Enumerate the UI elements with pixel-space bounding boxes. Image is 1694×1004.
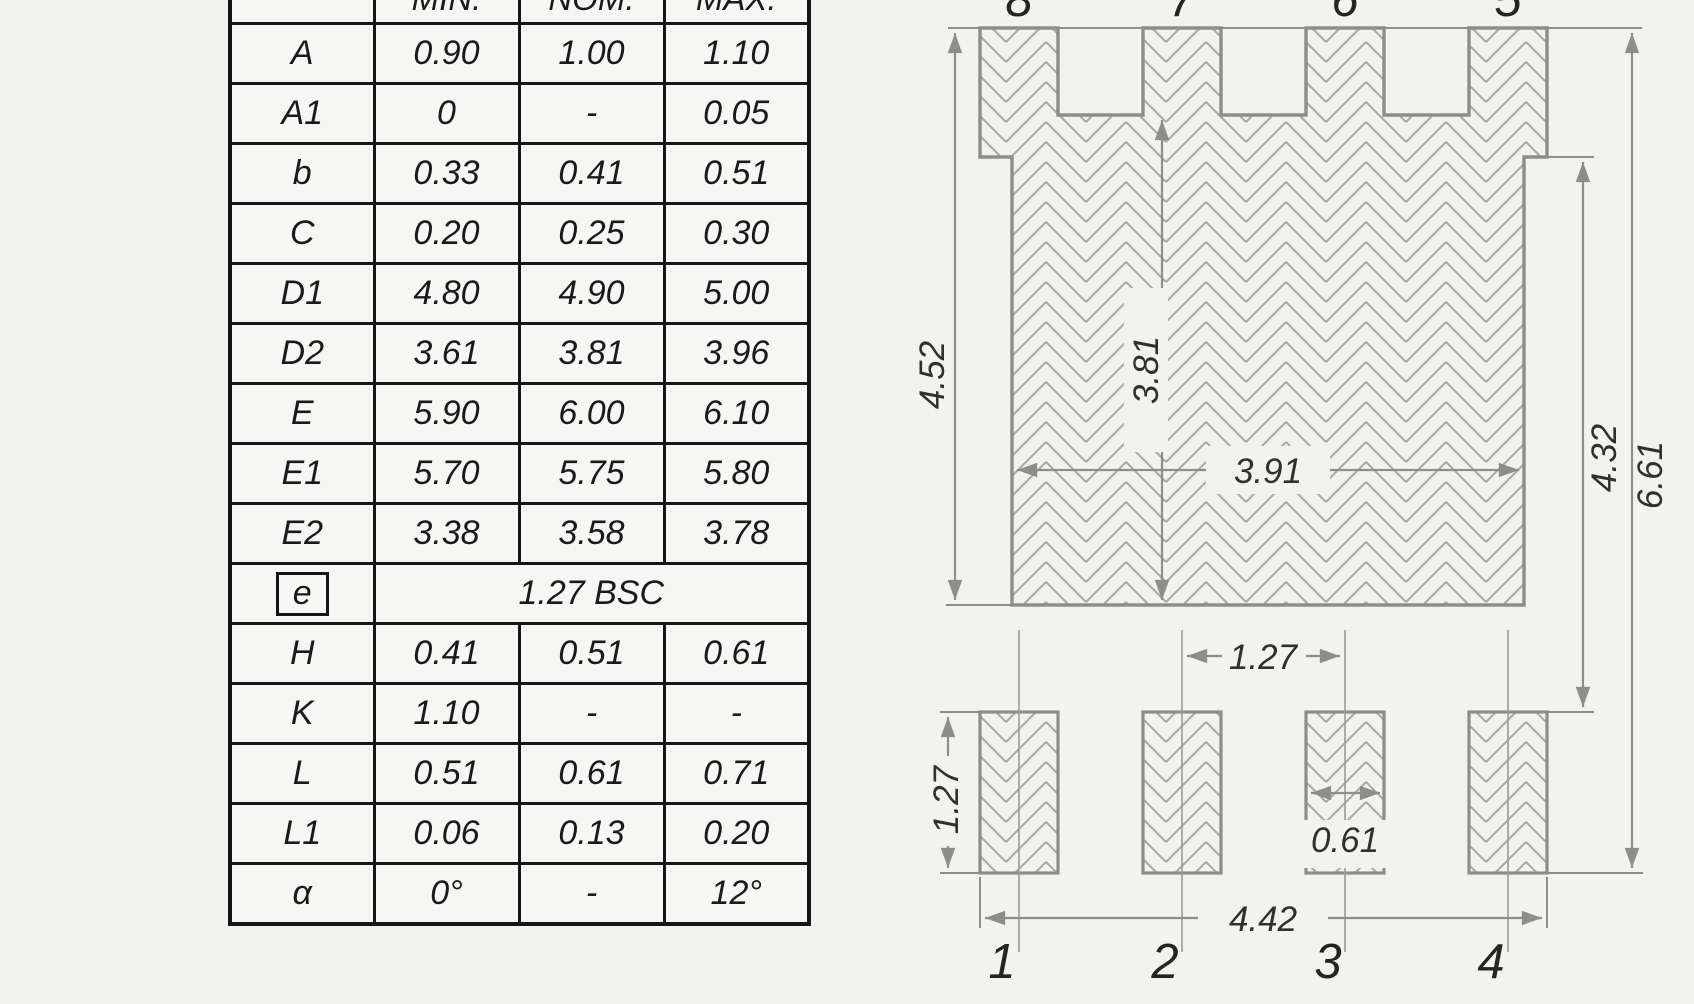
top-pin-labels: 8 7 6 5: [1005, 0, 1522, 27]
cell-min: 4.80: [374, 264, 519, 324]
cell-max: 0.05: [664, 84, 809, 144]
pin-label-4: 4: [1477, 935, 1504, 989]
cell-max: 3.78: [664, 504, 809, 564]
table-row: E1 5.70 5.75 5.80: [230, 444, 809, 504]
cell-nom: 0.13: [519, 804, 664, 864]
table-header-row: MIN. NOM. MAX.: [230, 0, 809, 24]
cell-nom: 0.25: [519, 204, 664, 264]
table-row: E2 3.38 3.58 3.78: [230, 504, 809, 564]
dim-right-height: 4.32: [1585, 424, 1624, 492]
cell-nom: -: [519, 684, 664, 744]
cell-nom: 3.81: [519, 324, 664, 384]
header-max: MAX.: [664, 0, 809, 24]
pin-label-3: 3: [1314, 935, 1341, 989]
cell-nom: 6.00: [519, 384, 664, 444]
cell-min: 0: [374, 84, 519, 144]
cell-e-span: 1.27 BSC: [374, 564, 809, 624]
pin-label-5: 5: [1494, 0, 1522, 27]
cell-min: 0.41: [374, 624, 519, 684]
cell-nom: 0.41: [519, 144, 664, 204]
dimension-lines: [948, 33, 1632, 918]
cell-min: 0.06: [374, 804, 519, 864]
cell-symbol: C: [230, 204, 374, 264]
cell-max: 5.80: [664, 444, 809, 504]
table-row: b 0.33 0.41 0.51: [230, 144, 809, 204]
e-symbol: e: [293, 574, 312, 612]
table-row: L1 0.06 0.13 0.20: [230, 804, 809, 864]
cell-max: 0.20: [664, 804, 809, 864]
pad-1: [980, 712, 1058, 873]
cell-symbol-e: e: [230, 564, 374, 624]
extension-lines: [940, 28, 1643, 928]
cell-symbol: H: [230, 624, 374, 684]
cell-nom: 0.61: [519, 744, 664, 804]
pin-label-1: 1: [988, 935, 1015, 989]
pin-label-7: 7: [1168, 0, 1197, 27]
cell-symbol: E2: [230, 504, 374, 564]
pin-label-8: 8: [1005, 0, 1032, 27]
header-nom: NOM.: [519, 0, 664, 24]
pad-3: [1306, 712, 1384, 873]
table-row: L 0.51 0.61 0.71: [230, 744, 809, 804]
cell-max: 0.71: [664, 744, 809, 804]
pad-2: [1143, 712, 1221, 873]
cell-nom: 4.90: [519, 264, 664, 324]
cell-min: 0.90: [374, 24, 519, 84]
e-symbol-box: e: [276, 572, 329, 616]
dim-pad-width: 0.61: [1311, 821, 1379, 860]
cell-max: 3.96: [664, 324, 809, 384]
dim-pad-height: 1.27: [927, 764, 966, 834]
dim-text-backgrounds: [928, 288, 1392, 941]
pin-label-2: 2: [1150, 935, 1178, 989]
dim-inner-height: 3.81: [1127, 336, 1166, 404]
dim-total-height: 6.61: [1631, 441, 1670, 509]
cell-min: 5.90: [374, 384, 519, 444]
header-symbol: [230, 0, 374, 24]
cell-min: 0.51: [374, 744, 519, 804]
cell-symbol: D2: [230, 324, 374, 384]
cell-symbol: K: [230, 684, 374, 744]
table-row: α 0° - 12°: [230, 864, 809, 925]
cell-max: 5.00: [664, 264, 809, 324]
cell-nom: 3.58: [519, 504, 664, 564]
table-row-e: e 1.27 BSC: [230, 564, 809, 624]
table-row: C 0.20 0.25 0.30: [230, 204, 809, 264]
table-row: A1 0 - 0.05: [230, 84, 809, 144]
pad-centerlines: [1019, 630, 1508, 952]
cell-symbol: E: [230, 384, 374, 444]
header-min: MIN.: [374, 0, 519, 24]
cell-nom: 0.51: [519, 624, 664, 684]
cell-min: 0°: [374, 864, 519, 925]
cell-symbol: D1: [230, 264, 374, 324]
cell-symbol: E1: [230, 444, 374, 504]
package-body-hatched: [980, 28, 1547, 605]
cell-symbol: A1: [230, 84, 374, 144]
cell-max: 0.61: [664, 624, 809, 684]
table-row: D2 3.61 3.81 3.96: [230, 324, 809, 384]
cell-symbol-alpha: α: [230, 864, 374, 925]
pad-4: [1469, 712, 1547, 873]
table-row: K 1.10 - -: [230, 684, 809, 744]
cell-nom: -: [519, 864, 664, 925]
dim-body-width: 3.91: [1234, 452, 1302, 491]
dim-overall-height: 4.52: [913, 341, 952, 409]
cell-max: 0.51: [664, 144, 809, 204]
cell-min: 1.10: [374, 684, 519, 744]
pin-label-6: 6: [1331, 0, 1359, 27]
cell-symbol: A: [230, 24, 374, 84]
cell-nom: 1.00: [519, 24, 664, 84]
cell-min: 0.20: [374, 204, 519, 264]
cell-max: 1.10: [664, 24, 809, 84]
cell-max: 0.30: [664, 204, 809, 264]
cell-symbol: L: [230, 744, 374, 804]
bottom-pads: [980, 712, 1547, 873]
table-row: D1 4.80 4.90 5.00: [230, 264, 809, 324]
table-row: H 0.41 0.51 0.61: [230, 624, 809, 684]
table-row: E 5.90 6.00 6.10: [230, 384, 809, 444]
cell-symbol: b: [230, 144, 374, 204]
cell-max: 6.10: [664, 384, 809, 444]
cell-max: 12°: [664, 864, 809, 925]
cell-min: 0.33: [374, 144, 519, 204]
dimension-table: MIN. NOM. MAX. A 0.90 1.00 1.10 A1 0 - 0…: [228, 0, 811, 926]
cell-max: -: [664, 684, 809, 744]
cell-min: 3.38: [374, 504, 519, 564]
dim-pad-pitch: 1.27: [1229, 638, 1299, 677]
table-row: A 0.90 1.00 1.10: [230, 24, 809, 84]
cell-min: 5.70: [374, 444, 519, 504]
datasheet-page: MIN. NOM. MAX. A 0.90 1.00 1.10 A1 0 - 0…: [0, 0, 1694, 1004]
cell-min: 3.61: [374, 324, 519, 384]
cell-symbol: L1: [230, 804, 374, 864]
dim-pad-span: 4.42: [1229, 900, 1297, 939]
cell-nom: -: [519, 84, 664, 144]
dimension-texts: 4.52 3.81 3.91 4.32 6.61 1.27 1.27 0.61 …: [913, 336, 1670, 939]
bottom-pin-labels: 1 2 3 4: [988, 935, 1504, 989]
cell-nom: 5.75: [519, 444, 664, 504]
